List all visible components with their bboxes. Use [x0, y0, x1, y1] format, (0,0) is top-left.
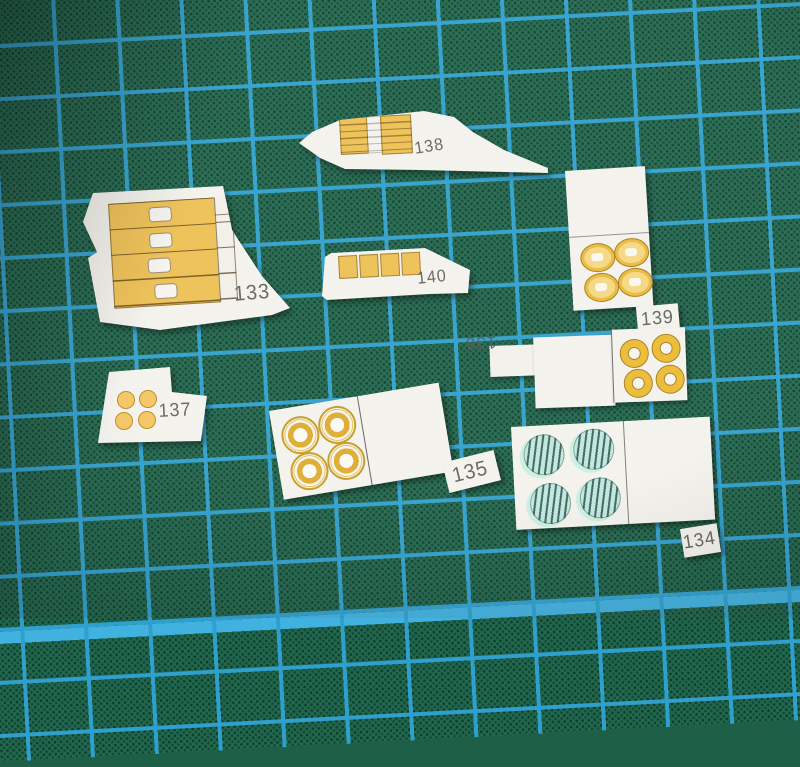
hatched-teal-disc: [572, 428, 615, 471]
photo-canvas: { "scene": { "subject": "Paper model cut…: [0, 0, 800, 618]
part-134-number-tab: 134: [680, 523, 721, 557]
part-number-label: 135: [450, 456, 491, 488]
paper-part-134: [511, 417, 715, 530]
hatched-teal-disc: [522, 433, 565, 476]
part-136-number-tab: 136: [489, 344, 536, 377]
porthole-ring: [651, 333, 681, 363]
part-137-cutout: 137: [94, 365, 210, 445]
part-140-print: [338, 252, 421, 279]
part-number-label: 138: [413, 134, 446, 158]
fold-line: [569, 232, 649, 238]
hatch-hole: [147, 257, 171, 273]
yellow-window: [338, 255, 358, 279]
hatched-teal-disc: [579, 476, 622, 519]
part-number-label: 136: [465, 331, 497, 352]
porthole: [613, 237, 650, 268]
paper-part-140: 140: [317, 244, 473, 304]
porthole-ring: [324, 439, 368, 483]
hatch-hole: [149, 232, 173, 248]
part-136-porthole-panel: [611, 327, 688, 403]
hatch-hole: [154, 283, 178, 299]
porthole: [579, 242, 616, 273]
part-number-label: 137: [158, 399, 192, 423]
paper-part-138: 138: [296, 106, 552, 176]
porthole-ring: [623, 368, 653, 398]
fold-line: [623, 421, 629, 524]
part-138-print: [339, 114, 413, 157]
porthole: [583, 272, 620, 303]
part-136-blank-panel: [533, 335, 615, 409]
paper-part-136: 136: [489, 327, 688, 412]
hatched-teal-disc: [529, 482, 572, 525]
porthole-dot: [115, 412, 133, 430]
striped-yellow-block: [380, 114, 413, 155]
part-number-label: 140: [416, 266, 448, 289]
part-138-cutout: 138: [296, 106, 552, 176]
part-140-cutout: 140: [317, 244, 473, 304]
part-133-cutout: 133: [66, 180, 296, 335]
part-number-label: 134: [682, 527, 718, 554]
yellow-window: [380, 253, 400, 277]
paper-part-133: 133: [66, 180, 296, 335]
hatch-hole: [148, 206, 172, 222]
striped-yellow-block: [339, 117, 369, 155]
porthole-ring: [288, 449, 332, 493]
yellow-window: [359, 254, 379, 278]
porthole-dot: [139, 390, 157, 408]
part-number-label: 133: [233, 280, 271, 307]
porthole-ring: [315, 403, 359, 447]
paper-part-137: 137: [94, 365, 210, 445]
porthole-dot: [117, 391, 135, 409]
part-133-print: [108, 197, 236, 307]
paper-part-139: [565, 166, 653, 311]
part-133-yellow-panel: [108, 197, 221, 308]
porthole-ring: [279, 413, 323, 457]
porthole: [617, 267, 654, 298]
porthole-ring: [655, 364, 685, 394]
porthole-dot: [138, 411, 156, 429]
porthole-ring: [619, 338, 649, 368]
